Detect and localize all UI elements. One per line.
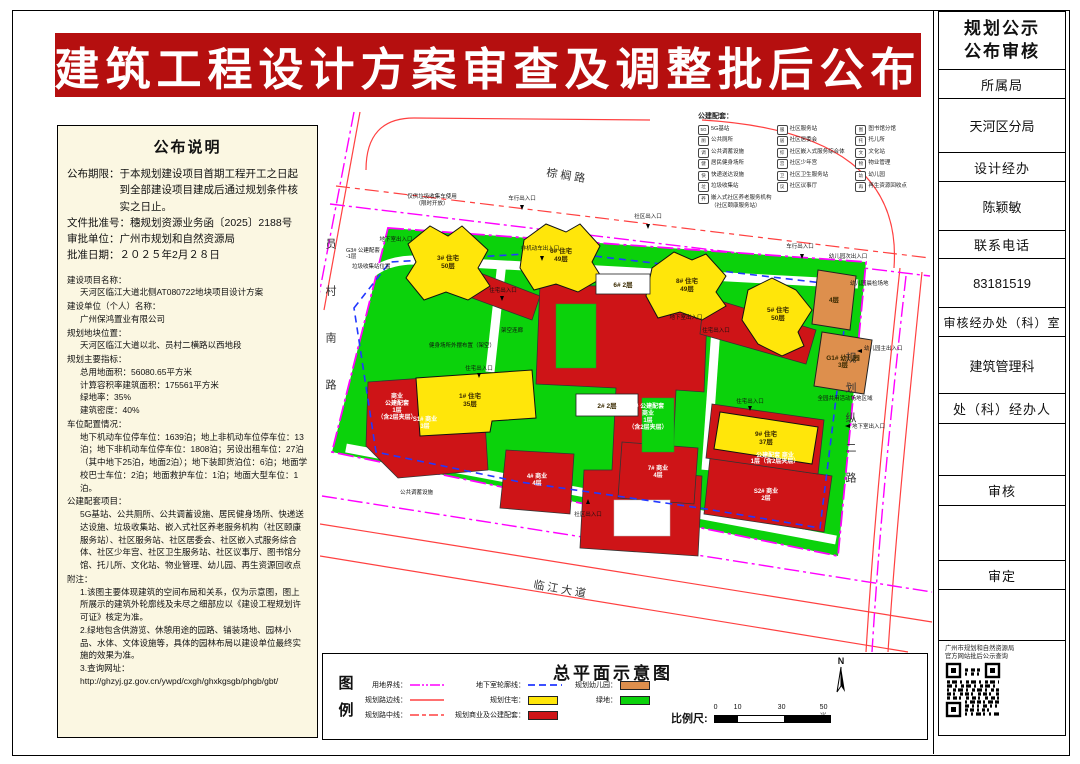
corridor-label: 架空连廊	[501, 326, 524, 334]
compass-n-label: N	[821, 656, 861, 666]
query-url: http://ghzyj.gz.gov.cn/ywpd/cxgh/ghxkgsg…	[67, 675, 308, 688]
entrance-label-residence-3: 住宅出入口	[465, 364, 493, 372]
facility-item: 物物业管理	[855, 159, 930, 169]
facility-item: 托托儿所	[855, 136, 930, 146]
facility-item: 宫社区少年宫	[777, 159, 852, 169]
fitness-label: 健身场所外摆布置（架空）	[429, 341, 495, 349]
facility-icon: 议	[777, 182, 788, 192]
plaza-1	[614, 500, 670, 536]
entrance-label-residence-2: 住宅出入口	[702, 326, 730, 334]
legend-item-green: 绿地：	[545, 695, 650, 705]
page-title: 建筑工程设计方案审查及调整批后公布	[55, 33, 922, 98]
row-review-office-label: 审核经办处（科）室	[938, 307, 1066, 338]
notice-section: 公布期限： 于本规划建设项目首期工程开工之日起到全部建设项目建成后通过规划条件核…	[67, 166, 308, 264]
entrance-label-vehicle-1: 车行出入口	[508, 194, 536, 202]
facility-icon: 5G	[698, 125, 709, 135]
facility-icon: 调	[698, 148, 709, 158]
scale-caption: 比例尺:	[671, 710, 708, 726]
row-approver-value	[938, 589, 1066, 641]
facility-item: 养嵌入式社区养老服务机构（社区颐康服务站）	[698, 194, 773, 211]
kindergarten-swatch	[620, 681, 650, 690]
courtyard-1	[556, 304, 596, 368]
facility-icon: 健	[698, 159, 709, 169]
g1a-label: 4层	[829, 295, 840, 304]
entrance-label-community-2: 社区出入口	[574, 510, 602, 518]
entrance-label-bicycle: 非机动车出入口	[521, 244, 560, 252]
garbage-note-line1: 仅供垃圾收集车使用	[407, 192, 457, 200]
entrance-label-residence-4: 住宅出入口	[736, 397, 764, 405]
facility-item: 5G5G基站	[698, 125, 773, 135]
facility-item: 健居民健身场所	[698, 159, 773, 169]
sidebar-title: 规划公示 公布审核	[938, 11, 1066, 71]
g3-label: G3# 公建配套-1层	[346, 246, 380, 260]
row-designer-label: 设计经办	[938, 152, 1066, 182]
facility-icon: 服	[777, 125, 788, 135]
commercial-swatch	[528, 711, 558, 720]
facility-item: 服社区服务站	[777, 125, 852, 135]
storm-facility-label: 公共调蓄设施	[400, 488, 434, 496]
row-designer-value: 陈颖敏	[938, 181, 1066, 231]
road-name-north: 棕榈路	[546, 165, 590, 185]
entrance-label-residence-1: 住宅出入口	[489, 286, 517, 294]
facility-item: 厕公共厕所	[698, 136, 773, 146]
remarks: 附注： 1.该图主要体现建筑的空间布局和关系，仅为示意图，图上所展示的建筑外轮廓…	[67, 573, 308, 688]
project-name: 建设项目名称： 天河区临江大道北侧AT080722地块项目设计方案	[67, 274, 308, 300]
review-sidebar: 规划公示 公布审核 所属局 天河区分局 设计经办 陈颖敏 联系电话 831815…	[938, 12, 1066, 736]
qr-caption-line1: 广州市规划和自然资源局	[945, 645, 1059, 653]
row-phone-label: 联系电话	[938, 230, 1066, 260]
facilities-col1: 5G5G基站厕公共厕所调公共调蓄设施健居民健身场所快快递送达设施垃垃圾收集站养嵌…	[698, 125, 773, 213]
entrance-label-community-1: 社区出入口	[634, 212, 662, 220]
entrance-label-basement-1: 地下室出入口	[379, 235, 412, 243]
facility-icon: 居	[777, 136, 788, 146]
notice-period: 公布期限： 于本规划建设项目首期工程开工之日起到全部建设项目建成后通过规划条件核…	[67, 166, 308, 215]
facility-icon: 快	[698, 171, 709, 181]
entrance-label-kg-secondary: 幼儿园次出入口	[829, 252, 868, 260]
announcement-panel: 公布说明 公布期限： 于本规划建设项目首期工程开工之日起到全部建设项目建成后通过…	[57, 125, 318, 738]
entrance-label-kg-main: 幼儿园主出入口	[864, 344, 903, 352]
entrance-marker	[520, 205, 524, 210]
facility-item: 调公共调蓄设施	[698, 148, 773, 158]
row-reviewer-label: 审核	[938, 475, 1066, 506]
legend-item-site-boundary: 用地界线：	[337, 680, 444, 690]
facilities-title: 公建配套：	[698, 112, 930, 123]
facility-item: 快快递送达设施	[698, 171, 773, 181]
legend-item-road-edge: 规划路边线：	[337, 695, 444, 705]
facility-icon: 物	[855, 159, 866, 169]
entrance-marker	[646, 224, 650, 229]
title-banner: 建筑工程设计方案审查及调整批后公布	[55, 33, 921, 97]
facility-item: 幼幼儿园	[855, 171, 930, 181]
facility-icon: 卫	[777, 171, 788, 181]
w2-label: 2# 2层	[597, 401, 617, 410]
row-handler-label: 处（科）经办人	[938, 393, 1066, 424]
facility-item: 居社区居委会	[777, 136, 852, 146]
row-review-office-value: 建筑管理科	[938, 336, 1066, 394]
public-facility-items: 公建配套项目： 5G基站、公共厕所、公共调蓄设施、居民健身场所、快递送达设施、垃…	[67, 495, 308, 572]
east-planning-line	[872, 276, 906, 652]
scale-segments	[714, 715, 831, 723]
road-name-west: 员村南路	[324, 238, 337, 426]
qr-caption-line2: 官方网站批后公示查询	[945, 653, 1059, 661]
facility-item: 文文化站	[855, 148, 930, 158]
site-plan-map: 棕榈路 员村南路 规划纵二路 临江大道 3# 住宅50层 6# 住宅49层 8#…	[320, 100, 934, 654]
qr-code	[945, 662, 1001, 718]
road-name-south: 临江大道	[532, 577, 590, 601]
facility-icon: 综	[777, 148, 788, 158]
approval-doc-number: 文件批准号： 穗规划资源业务函〔2025〕2188号	[67, 215, 308, 231]
scale-bar: 比例尺: 0 10 30 50米	[671, 704, 834, 726]
facility-icon: 图	[855, 125, 866, 135]
row-bureau-value: 天河区分局	[938, 98, 1066, 154]
key-indicators: 规划主要指标： 总用地面积：56080.65平方米 计算容积率建筑面积：1755…	[67, 353, 308, 417]
plot-location: 规划地块位置： 天河区临江大道以北、员村二横路以西地段	[67, 327, 308, 353]
kg-check-label: 幼儿园晨检场地	[850, 279, 889, 287]
row-reviewer-value	[938, 505, 1066, 561]
green-swatch	[620, 696, 650, 705]
facility-item: 垃垃圾收集站	[698, 182, 773, 192]
garbage-note-line2: （限时开放）	[415, 199, 448, 207]
facility-item: 再再生资源回收点	[855, 182, 930, 192]
legend-item-road-centerline: 规划路中线：	[337, 710, 444, 720]
project-details: 建设项目名称： 天河区临江大道北侧AT080722地块项目设计方案 建设单位（个…	[67, 274, 308, 688]
parking-config: 车位配置情况： 地下机动车位停车位：1639泊；地上非机动车位停车位：13泊；地…	[67, 418, 308, 495]
approval-authority: 审批单位： 广州市规划和自然资源局	[67, 231, 308, 247]
garbage-station-label: 垃圾收集站位置	[352, 262, 391, 270]
row-handler-value	[938, 423, 1066, 477]
entrance-label-basement-3: 地下室出入口	[852, 422, 885, 430]
facility-icon: 宫	[777, 159, 788, 169]
facility-item: 图图书馆分馆	[855, 125, 930, 135]
facilities-col2: 服社区服务站居社区居委会综社区嵌入式服务综合体宫社区少年宫卫社区卫生服务站议社区…	[777, 125, 852, 213]
entrance-label-basement-2: 地下室出入口	[669, 313, 702, 321]
facility-icon: 文	[855, 148, 866, 158]
row-phone-value: 83181519	[938, 258, 1066, 308]
row-bureau-label: 所属局	[938, 69, 1066, 99]
facility-icon: 幼	[855, 171, 866, 181]
facility-item: 议社区议事厅	[777, 182, 852, 192]
legend-box: 图 例 总平面示意图 用地界线： 规划路边线： 规划路中线： 地下室轮廓线： 规…	[322, 653, 928, 740]
row-approver-label: 审定	[938, 560, 1066, 591]
legend-item-kindergarten: 规划幼儿园：	[545, 680, 650, 690]
facility-icon: 托	[855, 136, 866, 146]
biz-se-label: 公建配套 商业1层（含2层夹层）	[751, 451, 800, 465]
legend-item-residential: 规划住宅：	[433, 695, 558, 705]
approval-date: 批准日期： ２０２５年2月２８日	[67, 247, 308, 263]
facility-item: 卫社区卫生服务站	[777, 171, 852, 181]
facility-icon: 再	[855, 182, 866, 192]
qr-section: 广州市规划和自然资源局 官方网站批后公示查询	[938, 640, 1066, 736]
w6-label: 6# 2层	[613, 280, 633, 289]
north-compass: N	[821, 656, 861, 702]
facility-icon: 垃	[698, 182, 709, 192]
scale-ruler: 0 10 30 50米	[714, 704, 834, 726]
constructor-name: 建设单位（个人）名称： 广州保鸿置业有限公司	[67, 300, 308, 326]
legend-item-commercial: 规划商业及公建配套：	[433, 710, 558, 720]
facility-icon: 厕	[698, 136, 709, 146]
planning-notice-poster: { "banner": {"title": "建筑工程设计方案审查及调整批后公布…	[0, 0, 1080, 764]
facility-icon: 养	[698, 194, 709, 204]
legend-item-underground: 地下室轮廓线：	[433, 680, 562, 690]
entrance-label-vehicle-2: 车行出入口	[786, 242, 814, 250]
facilities-col3: 图图书馆分馆托托儿所文文化站物物业管理幼幼儿园再再生资源回收点	[855, 125, 930, 213]
panel-heading: 公布说明	[67, 136, 308, 157]
kg-shared-label: 全园共用活动场地区域	[817, 394, 873, 402]
east-road-edge-1	[866, 268, 900, 652]
compass-needle-icon	[828, 666, 854, 698]
north-block-edge	[366, 118, 650, 170]
facility-item: 综社区嵌入式服务综合体	[777, 148, 852, 158]
facilities-legend: 公建配套： 5G5G基站厕公共厕所调公共调蓄设施健居民健身场所快快递送达设施垃垃…	[698, 112, 930, 212]
